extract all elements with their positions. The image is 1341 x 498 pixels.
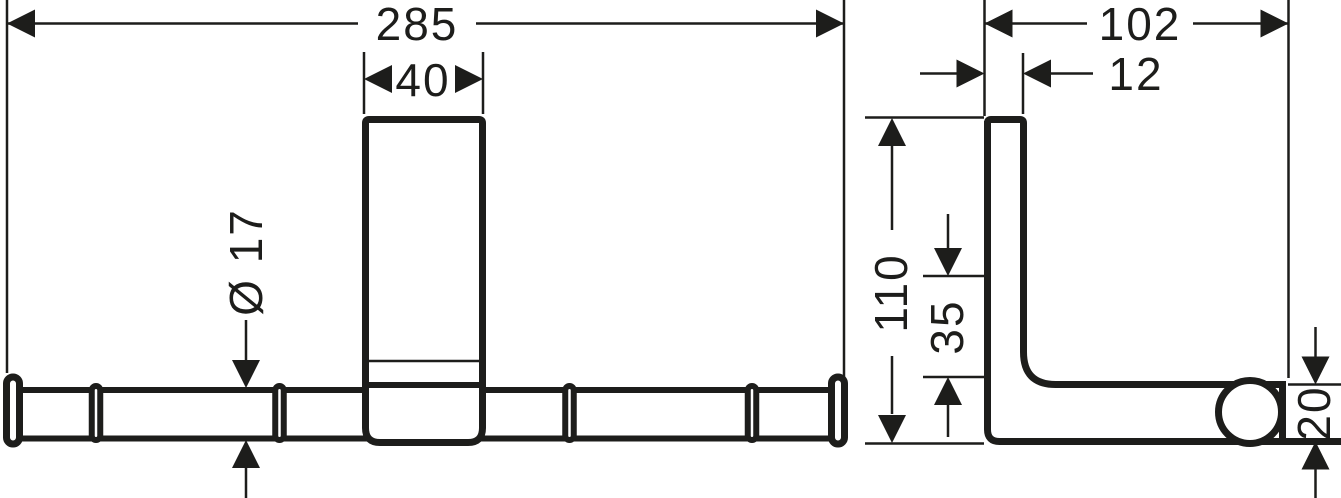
dimension-label-lower-offset: 35: [921, 299, 973, 354]
bar-end-cap-left: [7, 377, 20, 444]
dimension-label-depth: 102: [1099, 0, 1182, 50]
arrowhead-left: [364, 65, 392, 93]
bar-joint: [92, 386, 101, 440]
arrowhead-left: [7, 10, 35, 38]
side-view: 102 12 110 35: [865, 0, 1341, 498]
dimension-label-overall-width: 285: [376, 0, 459, 50]
bar-cross-section: [1219, 381, 1282, 444]
arrowhead-up: [934, 377, 962, 405]
dimension-label-bar-size: 20: [1288, 385, 1340, 440]
arrowhead-up: [232, 440, 260, 468]
dimension-label-bar-diameter: Ø 17: [220, 208, 272, 316]
dimension-plate-thickness: 12: [920, 48, 1164, 114]
technical-drawing-canvas: 285 40 Ø 17: [0, 0, 1341, 498]
mounting-bracket: [366, 120, 483, 443]
arrowhead-up: [1302, 442, 1330, 470]
dimension-height: 110: [865, 118, 984, 444]
arrowhead-down: [1302, 357, 1330, 385]
arrowhead-up: [878, 118, 906, 146]
dimension-bar-diameter: Ø 17: [220, 208, 272, 498]
bar-joint: [565, 386, 574, 440]
dimension-label-height: 110: [865, 253, 917, 332]
bar-end-cap-right: [832, 377, 845, 444]
arrowhead-down: [934, 248, 962, 276]
dimension-label-bracket-width: 40: [395, 54, 450, 106]
plate-and-arm-top-profile: [988, 120, 1283, 385]
arrowhead-right: [957, 60, 985, 88]
arrowhead-down: [232, 360, 260, 388]
front-view: 285 40 Ø 17: [7, 0, 845, 498]
bar-joint: [748, 386, 757, 440]
arrowhead-down: [878, 415, 906, 443]
dimension-bracket-width: 40: [364, 52, 483, 114]
dimension-label-plate-thickness: 12: [1108, 48, 1163, 100]
arrowhead-right: [1261, 10, 1289, 38]
dimension-bar-size: 20: [1288, 327, 1341, 498]
bar-joint: [275, 386, 284, 440]
arrowhead-left: [985, 10, 1013, 38]
arrowhead-right: [455, 65, 483, 93]
arrowhead-right: [816, 10, 844, 38]
dimension-drawing: 285 40 Ø 17: [0, 0, 1341, 498]
dimension-lower-offset: 35: [921, 214, 984, 437]
arrowhead-left: [1023, 60, 1051, 88]
